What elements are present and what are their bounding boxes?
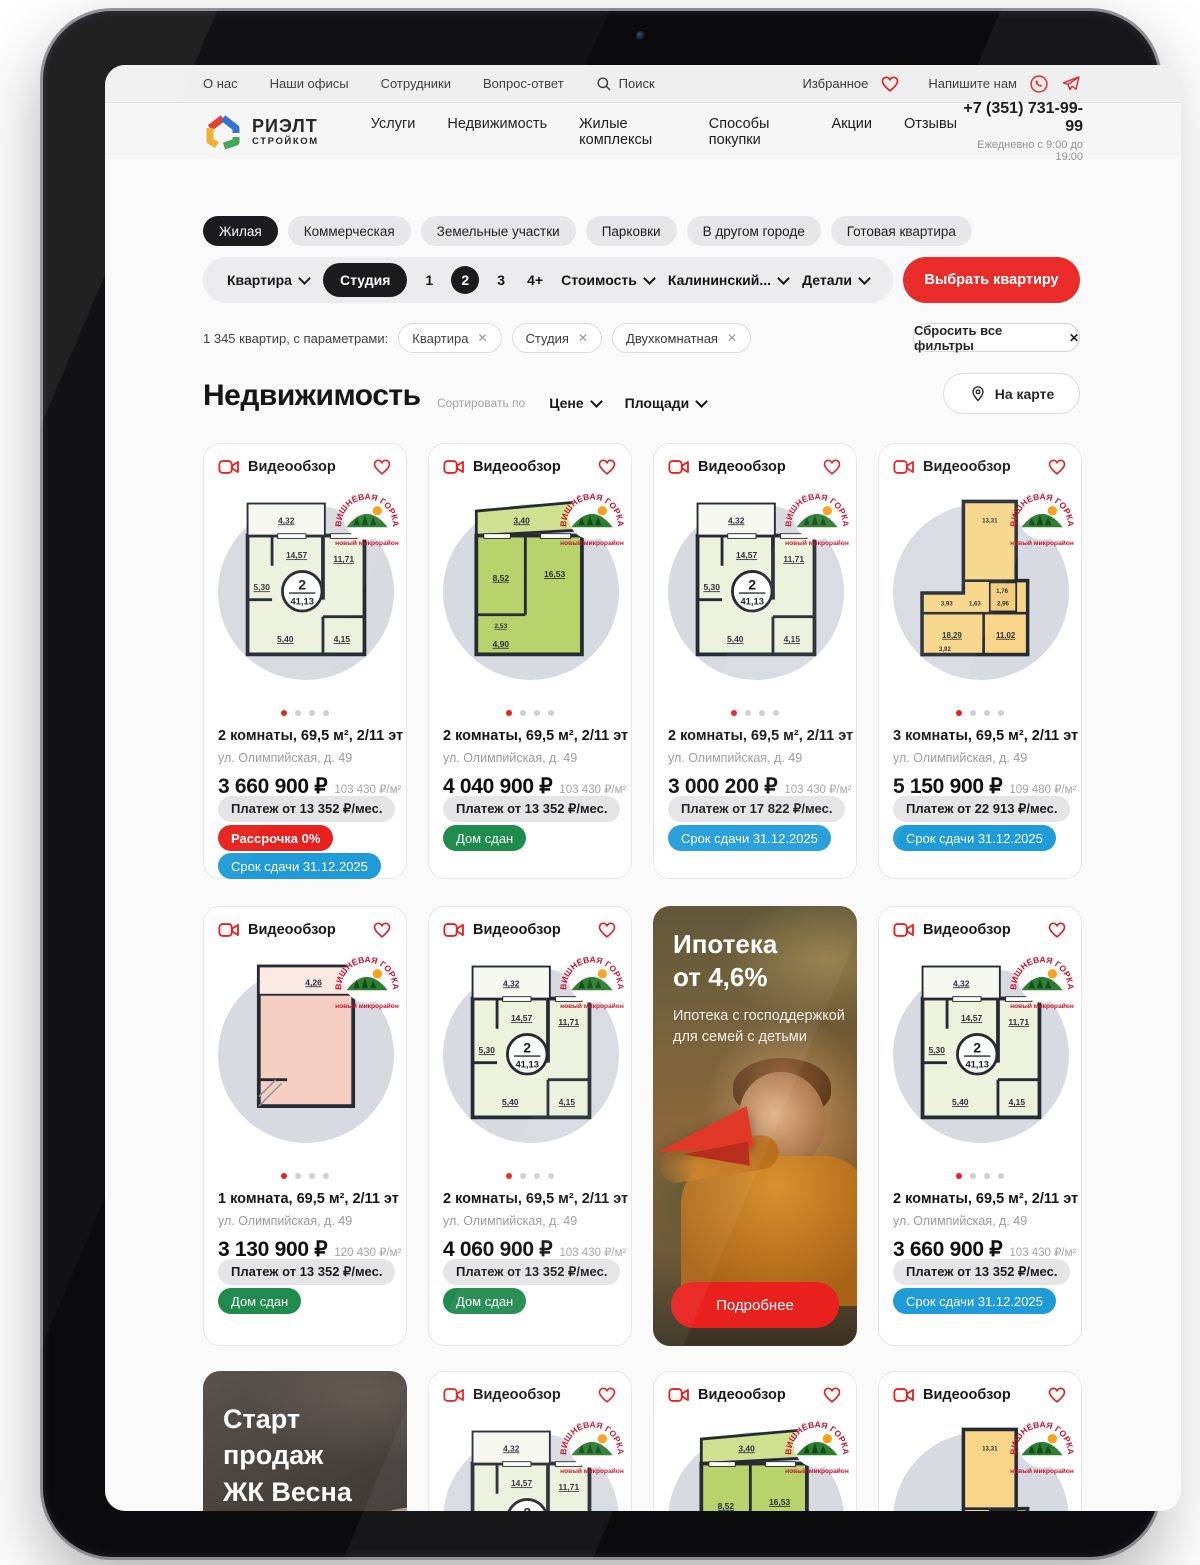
main-nav: Услуги Недвижимость Жилые комплексы Спос… xyxy=(371,116,957,148)
logo-house-icon xyxy=(203,112,243,152)
chevron-down-icon xyxy=(643,272,656,285)
favorite-heart-icon[interactable] xyxy=(372,920,392,940)
video-overview: Видеообзор xyxy=(218,458,336,476)
property-card[interactable]: Видеообзор xyxy=(428,1371,632,1511)
page: О нас Наши офисы Сотрудники Вопрос-ответ… xyxy=(0,0,1200,1565)
dropdown-price[interactable]: Стоимость xyxy=(561,272,654,288)
installment-badge: Рассрочка 0% xyxy=(218,825,333,851)
nav-about[interactable]: О нас xyxy=(203,76,238,91)
video-overview: Видеообзор xyxy=(443,1386,561,1404)
video-camera-icon xyxy=(218,458,240,476)
video-overview: Видеообзор xyxy=(668,458,786,476)
mortgage-promo-card[interactable]: Ипотека от 4,6% Ипотека с господдержкой … xyxy=(653,906,857,1346)
status-badge: Дом сдан xyxy=(218,1288,301,1314)
carousel-dots[interactable] xyxy=(429,710,631,716)
header: РИЭЛТ СТРОЙКОМ Услуги Недвижимость Жилые… xyxy=(105,104,1181,159)
price-per-m2: 103 430 ₽/м² xyxy=(784,782,851,796)
carousel-dots[interactable] xyxy=(879,1173,1081,1179)
payment-badge: Платеж от 13 352 ₽/мес. xyxy=(218,796,395,822)
favorite-heart-icon[interactable] xyxy=(1047,1385,1067,1405)
chevron-down-icon xyxy=(590,395,603,408)
search-link[interactable]: Поиск xyxy=(596,76,655,92)
complex-logo-badge xyxy=(784,1416,850,1476)
promo-title: Ипотека от 4,6% xyxy=(673,928,777,993)
floorplan-carousel[interactable] xyxy=(218,955,394,1169)
complex-logo-badge xyxy=(334,488,400,548)
carousel-dots[interactable] xyxy=(879,710,1081,716)
property-card[interactable]: Видеообзор 1 комната, 69,5 м², 2/11 эт у… xyxy=(203,906,407,1346)
price-per-m2: 103 430 ₽/м² xyxy=(559,782,626,796)
map-view-button[interactable]: На карте xyxy=(943,373,1080,414)
carousel-dots[interactable] xyxy=(204,1173,406,1179)
dropdown-apartment-type[interactable]: Квартира xyxy=(227,272,309,288)
video-camera-icon xyxy=(443,921,465,939)
sales-start-promo-card[interactable]: Старт продаж ЖК Весна xyxy=(203,1371,407,1511)
property-card[interactable]: Видеообзор 2 комнаты, 69,5 м², 2/11 эт у… xyxy=(428,443,632,879)
floorplan-carousel[interactable] xyxy=(893,1420,1069,1511)
favorites-heart-icon[interactable] xyxy=(880,74,900,94)
complex-logo-badge xyxy=(1009,951,1075,1011)
chevron-down-icon xyxy=(298,272,311,285)
price-per-m2: 120 430 ₽/м² xyxy=(334,1245,401,1259)
category-filter-row: Жилая Коммерческая Земельные участки Пар… xyxy=(203,216,972,246)
listing-title: 3 комнаты, 69,5 м², 2/11 эт xyxy=(893,728,1078,744)
video-camera-icon xyxy=(218,921,240,939)
video-camera-icon xyxy=(893,1386,915,1404)
remove-filter-icon[interactable]: ✕ xyxy=(727,332,737,344)
promo-title: Старт продаж ЖК Весна xyxy=(223,1401,352,1510)
listing-address: ул. Олимпийская, д. 49 xyxy=(893,1214,1027,1228)
property-card[interactable]: Видеообзор 2 комнаты, 69,5 м², 2/11 эт у… xyxy=(878,906,1082,1346)
promo-details-button[interactable]: Подробнее xyxy=(671,1282,839,1328)
property-card[interactable]: Видеообзор xyxy=(653,1371,857,1511)
carousel-dots[interactable] xyxy=(654,710,856,716)
sort-by-label: Сортировать по xyxy=(437,396,525,410)
utility-bar: О нас Наши офисы Сотрудники Вопрос-ответ… xyxy=(105,65,1181,103)
video-camera-icon xyxy=(668,458,690,476)
reset-filters-button[interactable]: Сбросить все фильтры✕ xyxy=(913,323,1080,352)
floorplan-carousel[interactable] xyxy=(893,955,1069,1169)
favorite-heart-icon[interactable] xyxy=(372,457,392,477)
payment-badge: Платеж от 13 352 ₽/мес. xyxy=(218,1259,395,1285)
complex-logo-badge xyxy=(559,1416,625,1476)
results-line: 1 345 квартир, с параметрами: Квартира✕ … xyxy=(203,323,751,353)
listing-address: ул. Олимпийская, д. 49 xyxy=(218,1214,352,1228)
results-count: 1 345 квартир, с параметрами: xyxy=(203,331,388,346)
status-badge: Дом сдан xyxy=(443,1288,526,1314)
listing-address: ул. Олимпийская, д. 49 xyxy=(893,751,1027,765)
filter-bar: Квартира Студия 1 2 3 4+ Стоимость Калин… xyxy=(203,257,893,303)
favorite-heart-icon[interactable] xyxy=(1047,920,1067,940)
complex-logo-badge xyxy=(784,488,850,548)
telegram-icon[interactable] xyxy=(1061,74,1081,94)
property-card[interactable]: Видеообзор 2 комнаты, 69,5 м², 2/11 эт у… xyxy=(653,443,857,879)
write-us-link[interactable]: Напишите нам xyxy=(928,76,1017,91)
price-per-m2: 103 430 ₽/м² xyxy=(334,782,401,796)
front-camera xyxy=(636,31,646,41)
floorplan-carousel[interactable] xyxy=(668,492,844,706)
video-overview: Видеообзор xyxy=(443,921,561,939)
working-hours: Ежедневно с 9:00 до 19:00 xyxy=(957,139,1083,163)
tablet-frame: О нас Наши офисы Сотрудники Вопрос-ответ… xyxy=(40,8,1162,1560)
favorite-heart-icon[interactable] xyxy=(597,1385,617,1405)
video-overview: Видеообзор xyxy=(443,458,561,476)
favorite-heart-icon[interactable] xyxy=(597,457,617,477)
dropdown-district[interactable]: Калининский... xyxy=(668,272,788,288)
video-camera-icon xyxy=(893,458,915,476)
filter-ready[interactable]: Готовая квартира xyxy=(831,216,972,246)
property-card[interactable]: Видеообзор 3 комнаты, 69,5 м², 2/11 эт у… xyxy=(878,443,1082,879)
choose-apartment-button[interactable]: Выбрать квартиру xyxy=(903,257,1080,303)
dropdown-details[interactable]: Детали xyxy=(802,272,869,288)
carousel-dots[interactable] xyxy=(204,710,406,716)
floorplan-carousel[interactable] xyxy=(443,1420,619,1511)
payment-badge: Платеж от 17 822 ₽/мес. xyxy=(668,796,845,822)
listing-address: ул. Олимпийская, д. 49 xyxy=(443,1214,577,1228)
listing-title: 2 комнаты, 69,5 м², 2/11 эт xyxy=(218,728,403,744)
property-card[interactable]: Видеообзор 2 комнаты, 69,5 м², 2/11 эт у… xyxy=(428,906,632,1346)
video-overview: Видеообзор xyxy=(668,1386,786,1404)
complex-logo-badge xyxy=(559,951,625,1011)
floorplan-carousel[interactable] xyxy=(218,492,394,706)
listing-title: 2 комнаты, 69,5 м², 2/11 эт xyxy=(443,728,628,744)
video-overview: Видеообзор xyxy=(893,1386,1011,1404)
nav-services[interactable]: Услуги xyxy=(371,116,416,148)
property-card[interactable]: Видеообзор 2 комнаты, 69,5 м², 2/11 эт у… xyxy=(203,443,407,879)
nav-staff[interactable]: Сотрудники xyxy=(381,76,451,91)
status-badge: Дом сдан xyxy=(443,825,526,851)
complex-logo-badge xyxy=(559,488,625,548)
nav-reviews[interactable]: Отзывы xyxy=(904,116,957,148)
applied-filter-studio[interactable]: Студия✕ xyxy=(512,323,603,353)
listing-title: 2 комнаты, 69,5 м², 2/11 эт xyxy=(893,1191,1078,1207)
video-overview: Видеообзор xyxy=(893,458,1011,476)
completion-badge: Срок сдачи 31.12.2025 xyxy=(668,825,831,851)
favorite-heart-icon[interactable] xyxy=(822,457,842,477)
nav-complexes[interactable]: Жилые комплексы xyxy=(579,116,677,148)
sort-row: Сортировать по Цене Площади xyxy=(437,395,706,411)
favorite-heart-icon[interactable] xyxy=(1047,457,1067,477)
sort-by-area[interactable]: Площади xyxy=(625,395,707,411)
price-per-m2: 103 430 ₽/м² xyxy=(1009,1245,1076,1259)
listing-title: 1 комната, 69,5 м², 2/11 эт xyxy=(218,1191,399,1207)
completion-badge: Срок сдачи 31.12.2025 xyxy=(893,1288,1056,1314)
carousel-dots[interactable] xyxy=(429,1173,631,1179)
floorplan-carousel[interactable] xyxy=(668,1420,844,1511)
nav-offices[interactable]: Наши офисы xyxy=(270,76,349,91)
filter-residential[interactable]: Жилая xyxy=(203,216,278,246)
rooms-4plus[interactable]: 4+ xyxy=(523,272,547,288)
listing-address: ул. Олимпийская, д. 49 xyxy=(668,751,802,765)
logo-text: РИЭЛТ СТРОЙКОМ xyxy=(252,117,319,147)
applied-filter-apartment[interactable]: Квартира✕ xyxy=(398,323,501,353)
logo[interactable]: РИЭЛТ СТРОЙКОМ xyxy=(203,112,319,152)
search-label: Поиск xyxy=(619,76,655,91)
filter-commercial[interactable]: Коммерческая xyxy=(288,216,411,246)
rooms-2[interactable]: 2 xyxy=(451,266,479,294)
favorite-heart-icon[interactable] xyxy=(597,920,617,940)
video-camera-icon xyxy=(668,1386,690,1404)
applied-filter-tworoom[interactable]: Двухкомнатная✕ xyxy=(612,323,751,353)
remove-filter-icon[interactable]: ✕ xyxy=(578,332,588,344)
floorplan-carousel[interactable] xyxy=(443,955,619,1169)
phone-number[interactable]: +7 (351) 731-99-99 xyxy=(957,100,1083,136)
nav-realty[interactable]: Недвижимость xyxy=(447,116,547,148)
complex-logo-badge xyxy=(1009,1416,1075,1476)
filter-studio[interactable]: Студия xyxy=(323,263,407,297)
promo-subtitle: Ипотека с господдержкой для семей с деть… xyxy=(673,1006,845,1048)
floorplan-carousel[interactable] xyxy=(893,492,1069,706)
nav-promos[interactable]: Акции xyxy=(831,116,872,148)
property-card[interactable]: Видеообзор xyxy=(878,1371,1082,1511)
payment-badge: Платеж от 22 913 ₽/мес. xyxy=(893,796,1070,822)
payment-badge: Платеж от 13 352 ₽/мес. xyxy=(443,1259,620,1285)
filter-parking[interactable]: Парковки xyxy=(586,216,677,246)
page-title: Недвижимость xyxy=(203,379,421,413)
filter-land[interactable]: Земельные участки xyxy=(421,216,576,246)
listing-address: ул. Олимпийская, д. 49 xyxy=(443,751,577,765)
favorite-heart-icon[interactable] xyxy=(822,1385,842,1405)
complex-logo-badge xyxy=(1009,488,1075,548)
nav-purchase[interactable]: Способы покупки xyxy=(709,116,800,148)
video-overview: Видеообзор xyxy=(218,921,336,939)
payment-badge: Платеж от 13 352 ₽/мес. xyxy=(893,1259,1070,1285)
sort-by-price[interactable]: Цене xyxy=(549,395,600,411)
price-per-m2: 109 480 ₽/м² xyxy=(1009,782,1076,796)
whatsapp-icon[interactable] xyxy=(1029,74,1049,94)
remove-filter-icon[interactable]: ✕ xyxy=(477,332,487,344)
favorites-link[interactable]: Избранное xyxy=(803,76,869,91)
rooms-1[interactable]: 1 xyxy=(421,272,437,288)
listing-title: 2 комнаты, 69,5 м², 2/11 эт xyxy=(443,1191,628,1207)
video-camera-icon xyxy=(443,458,465,476)
chevron-down-icon xyxy=(695,395,708,408)
listing-address: ул. Олимпийская, д. 49 xyxy=(218,751,352,765)
reset-x-icon: ✕ xyxy=(1069,332,1079,344)
complex-logo-badge xyxy=(334,951,400,1011)
video-camera-icon xyxy=(893,921,915,939)
video-overview: Видеообзор xyxy=(893,921,1011,939)
nav-faq[interactable]: Вопрос-ответ xyxy=(483,76,564,91)
search-icon xyxy=(596,76,612,92)
completion-badge: Срок сдачи 31.12.2025 xyxy=(218,853,381,879)
payment-badge: Платеж от 13 352 ₽/мес. xyxy=(443,796,620,822)
rooms-3[interactable]: 3 xyxy=(493,272,509,288)
chevron-down-icon xyxy=(858,272,871,285)
chevron-down-icon xyxy=(777,272,790,285)
listing-title: 2 комнаты, 69,5 м², 2/11 эт xyxy=(668,728,853,744)
tablet-screen: О нас Наши офисы Сотрудники Вопрос-ответ… xyxy=(105,65,1181,1511)
map-pin-icon xyxy=(969,385,987,403)
contact-block: +7 (351) 731-99-99 Ежедневно с 9:00 до 1… xyxy=(957,100,1083,163)
floorplan-carousel[interactable] xyxy=(443,492,619,706)
completion-badge: Срок сдачи 31.12.2025 xyxy=(893,825,1056,851)
filter-other-city[interactable]: В другом городе xyxy=(687,216,821,246)
price-per-m2: 103 430 ₽/м² xyxy=(559,1245,626,1259)
video-camera-icon xyxy=(443,1386,465,1404)
